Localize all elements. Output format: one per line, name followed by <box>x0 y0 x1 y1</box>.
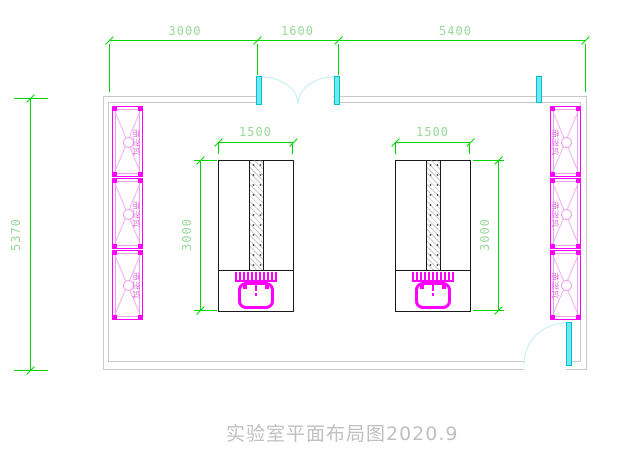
cabinet-corner <box>550 315 555 320</box>
cabinet-knob <box>561 209 572 220</box>
cabinet-corner <box>550 178 555 183</box>
sink-tab <box>243 284 247 289</box>
cabinet-corner <box>138 178 143 183</box>
sink-tab <box>442 284 446 289</box>
cabinet-corner <box>112 244 117 249</box>
cabinet-corner <box>112 172 117 177</box>
bench-channel <box>249 160 264 270</box>
cabinet-label: 试剂柜 <box>552 200 560 227</box>
cabinet-corner <box>112 106 117 111</box>
cabinet-corner <box>550 250 555 255</box>
floorplan-canvas: 3000 1600 5400 5370 1500 3000 1 <box>0 0 619 469</box>
extension-line <box>218 143 219 154</box>
door-opening-top <box>262 94 333 105</box>
sink-basin <box>238 282 274 309</box>
dimension-line-top <box>109 40 586 41</box>
extension-line <box>338 44 339 75</box>
reagent-cabinet: 试剂柜 <box>112 178 143 249</box>
reagent-cabinet: 试剂柜 <box>550 178 581 249</box>
extension-line <box>473 160 504 161</box>
extension-line <box>109 44 110 92</box>
cabinet-corner <box>112 315 117 320</box>
cabinet-knob <box>561 137 572 148</box>
cabinet-corner <box>138 250 143 255</box>
dimension-line-bench-right-width <box>395 142 470 143</box>
cabinet-corner <box>576 250 581 255</box>
door-leaf-top-right <box>334 76 340 105</box>
bench-divider <box>395 270 470 271</box>
dimension-line-left <box>30 98 31 371</box>
cabinet-corner <box>576 106 581 111</box>
cabinet-corner <box>576 244 581 249</box>
reagent-cabinet: 试剂柜 <box>550 106 581 177</box>
dim-label-top-right: 5400 <box>428 24 483 38</box>
cabinet-label: 试剂柜 <box>133 200 141 227</box>
dim-label-bench-left-width: 1500 <box>228 125 283 139</box>
cabinet-corner <box>138 315 143 320</box>
dimension-line-bench-left-width <box>218 142 293 143</box>
extension-line <box>257 44 258 75</box>
door-leaf-bottom <box>566 322 572 366</box>
extension-line <box>292 143 293 154</box>
wall-inner <box>108 102 581 362</box>
extension-line <box>194 310 217 311</box>
reagent-cabinet: 试剂柜 <box>112 106 143 177</box>
cabinet-corner <box>576 172 581 177</box>
sink-faucet <box>255 285 257 291</box>
sink-tab <box>420 284 424 289</box>
dim-label-bench-left-length: 3000 <box>181 204 193 266</box>
cabinet-corner <box>138 106 143 111</box>
door-leaf-top-left <box>256 76 262 105</box>
window-marker <box>536 76 542 103</box>
extension-line <box>14 98 48 99</box>
cabinet-label: 试剂柜 <box>552 128 560 155</box>
cabinet-corner <box>550 106 555 111</box>
bench-channel <box>426 160 441 270</box>
water-drop <box>432 293 434 296</box>
extension-line <box>585 44 586 92</box>
dim-label-top-left: 3000 <box>155 24 215 38</box>
cabinet-corner <box>576 315 581 320</box>
sink-grill <box>235 272 277 282</box>
dimension-line-bench-right-length <box>498 160 499 310</box>
extension-line <box>395 143 396 154</box>
dim-label-top-middle: 1600 <box>270 24 325 38</box>
bench-divider <box>218 270 293 271</box>
cabinet-corner <box>550 172 555 177</box>
cabinet-label: 试剂柜 <box>552 272 560 299</box>
cabinet-knob <box>561 280 572 291</box>
sink-tab <box>265 284 269 289</box>
sink-basin <box>415 282 451 309</box>
cabinet-corner <box>138 172 143 177</box>
reagent-cabinet: 试剂柜 <box>112 250 143 320</box>
cabinet-corner <box>550 244 555 249</box>
sink-grill <box>412 272 454 282</box>
cabinet-corner <box>112 250 117 255</box>
dim-label-bench-right-width: 1500 <box>405 125 460 139</box>
cabinet-corner <box>138 244 143 249</box>
dim-label-bench-right-length: 3000 <box>479 204 491 266</box>
door-opening-bottom <box>524 359 566 372</box>
drawing-title: 实验室平面布局图2020.9 <box>226 419 458 446</box>
dim-label-room-height: 5370 <box>10 204 22 266</box>
water-drop <box>255 293 257 296</box>
cabinet-corner <box>112 178 117 183</box>
dimension-line-bench-left-length <box>200 160 201 310</box>
cabinet-label: 试剂柜 <box>133 128 141 155</box>
extension-line <box>14 370 48 371</box>
extension-line <box>194 160 217 161</box>
cabinet-label: 试剂柜 <box>133 272 141 299</box>
extension-line <box>473 310 504 311</box>
cabinet-corner <box>576 178 581 183</box>
extension-line <box>469 143 470 154</box>
reagent-cabinet: 试剂柜 <box>550 250 581 320</box>
sink-faucet <box>432 285 434 291</box>
